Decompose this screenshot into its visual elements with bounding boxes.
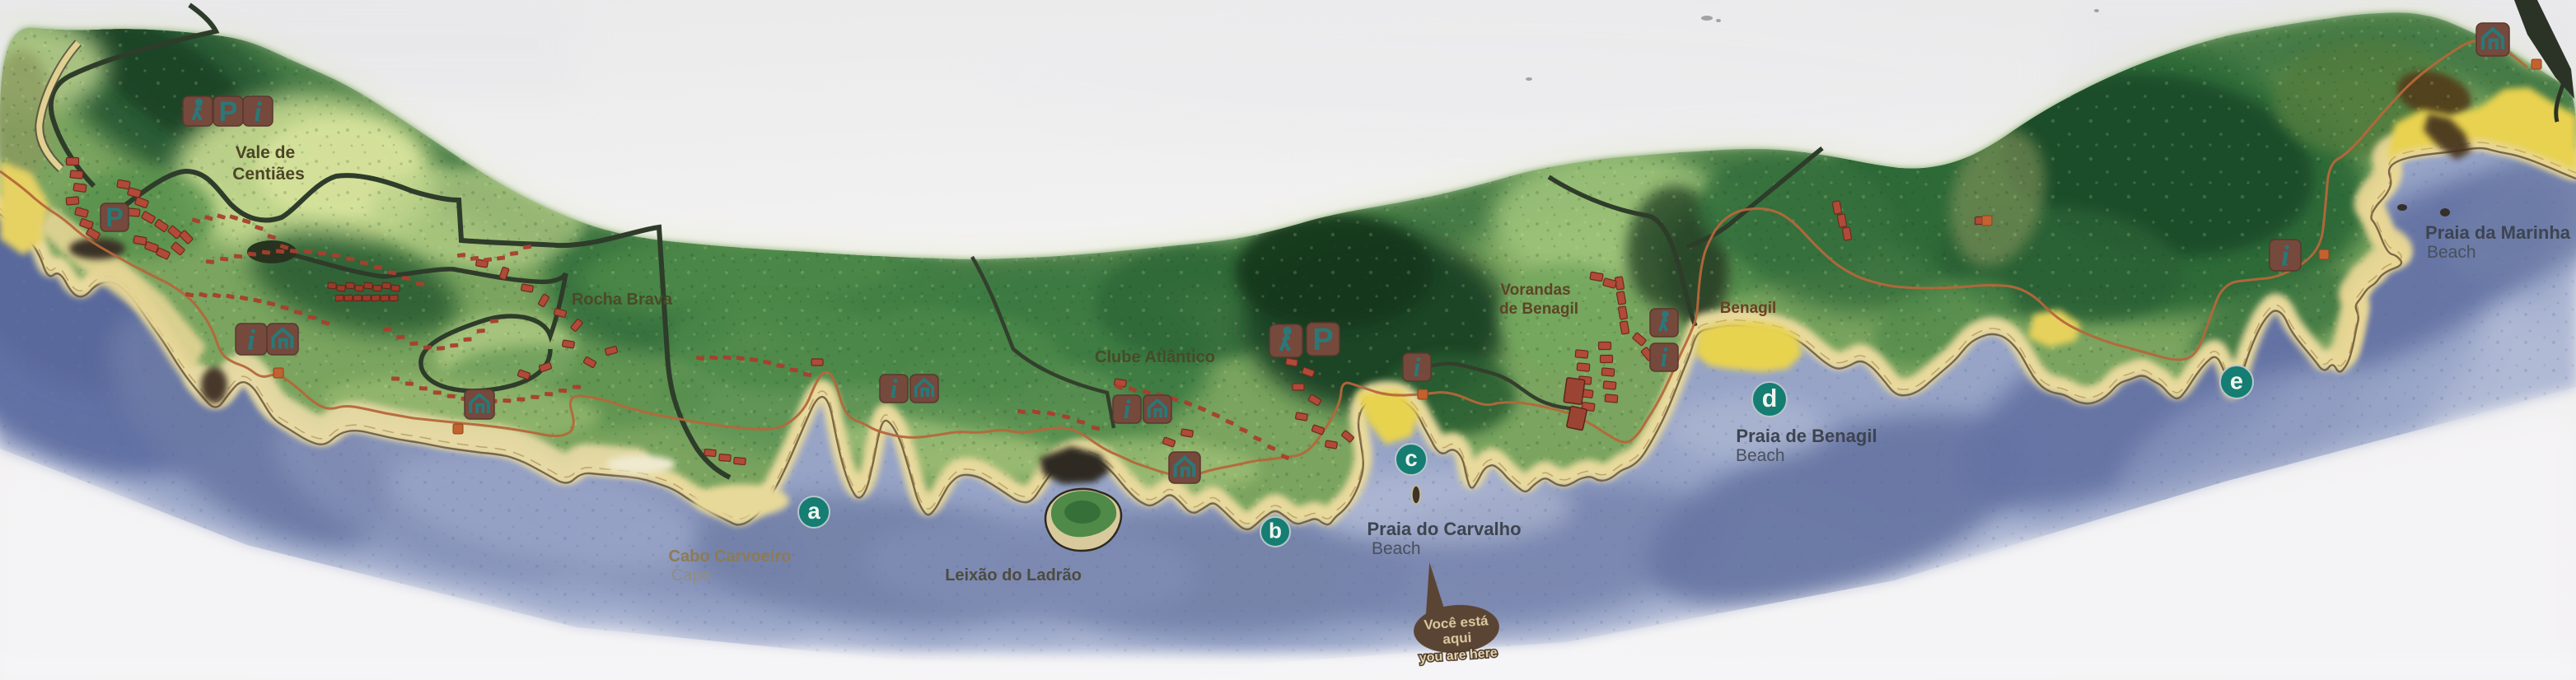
svg-text:Cabo Carvoeiro: Cabo Carvoeiro — [669, 547, 792, 566]
svg-text:Leixão do Ladrão: Leixão do Ladrão — [945, 566, 1082, 585]
svg-text:e: e — [2230, 368, 2243, 394]
svg-text:P: P — [219, 96, 238, 128]
svg-text:i: i — [1124, 394, 1131, 424]
svg-text:de Benagil: de Benagil — [1499, 300, 1578, 318]
svg-text:P: P — [1312, 323, 1333, 357]
svg-text:i: i — [1661, 342, 1668, 372]
svg-text:P: P — [105, 203, 124, 232]
svg-text:Beach: Beach — [2427, 243, 2476, 262]
svg-text:Praia de Benagil: Praia de Benagil — [1736, 426, 1877, 446]
svg-text:i: i — [254, 97, 262, 128]
svg-text:Praia da Marinha: Praia da Marinha — [2425, 222, 2571, 243]
svg-text:aqui: aqui — [1442, 630, 1472, 647]
svg-text:i: i — [247, 324, 255, 356]
svg-text:c: c — [1405, 445, 1417, 471]
svg-text:b: b — [1269, 519, 1282, 543]
svg-text:i: i — [2281, 240, 2289, 272]
svg-text:i: i — [1414, 352, 1421, 382]
svg-text:Cape: Cape — [671, 566, 711, 585]
svg-text:d: d — [1762, 384, 1778, 412]
svg-text:Vorandas: Vorandas — [1500, 282, 1570, 299]
svg-text:Rocha Brava: Rocha Brava — [572, 291, 673, 309]
svg-text:a: a — [807, 498, 820, 524]
svg-text:Vale de: Vale de — [236, 143, 295, 162]
svg-text:i: i — [891, 374, 898, 403]
svg-text:Praia do Carvalho: Praia do Carvalho — [1367, 519, 1521, 539]
svg-text:Beach: Beach — [1736, 446, 1785, 465]
svg-text:Clube Atlântico: Clube Atlântico — [1095, 348, 1215, 366]
svg-text:Benagil: Benagil — [1720, 300, 1777, 317]
svg-text:Beach: Beach — [1372, 539, 1421, 558]
svg-text:Centiães: Centiães — [232, 165, 305, 184]
